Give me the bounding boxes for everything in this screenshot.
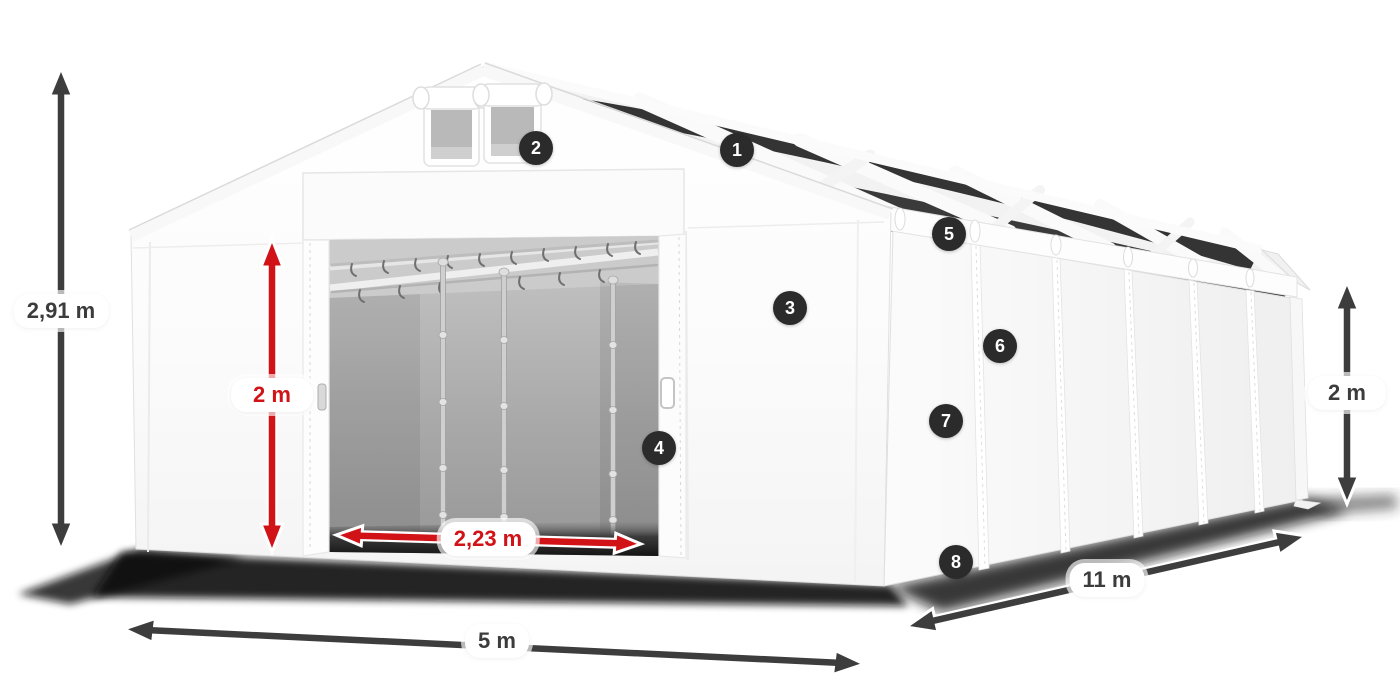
tent-dimension-diagram: 2,91 m 2 m 2,23 m 5 m 11 m 2 m 1 2 3 4 5… [0,0,1400,700]
dimension-label-front-width: 5 m [465,624,529,658]
callout-badge-6[interactable]: 6 [983,329,1017,363]
door-jamb-right [659,234,686,558]
callout-badge-7[interactable]: 7 [929,404,963,438]
callout-badge-3[interactable]: 3 [773,291,807,325]
dimension-label-door-width: 2,23 m [441,522,536,556]
dimension-label-side-height: 2 m [1308,376,1386,410]
door-header-band [303,169,684,240]
door-latch-right [661,378,674,408]
dimension-label-total-height: 2,91 m [14,294,109,328]
callout-badge-4[interactable]: 4 [642,431,676,465]
callout-badge-8[interactable]: 8 [939,545,973,579]
dimension-label-side-length: 11 m [1070,563,1145,597]
door-opening [329,236,659,556]
callout-badge-2[interactable]: 2 [519,131,553,165]
callout-badge-5[interactable]: 5 [932,217,966,251]
dimension-label-door-height: 2 m [231,378,313,412]
callout-badge-1[interactable]: 1 [720,133,754,167]
tent-illustration [0,0,1400,700]
door-handle-left [318,384,326,410]
